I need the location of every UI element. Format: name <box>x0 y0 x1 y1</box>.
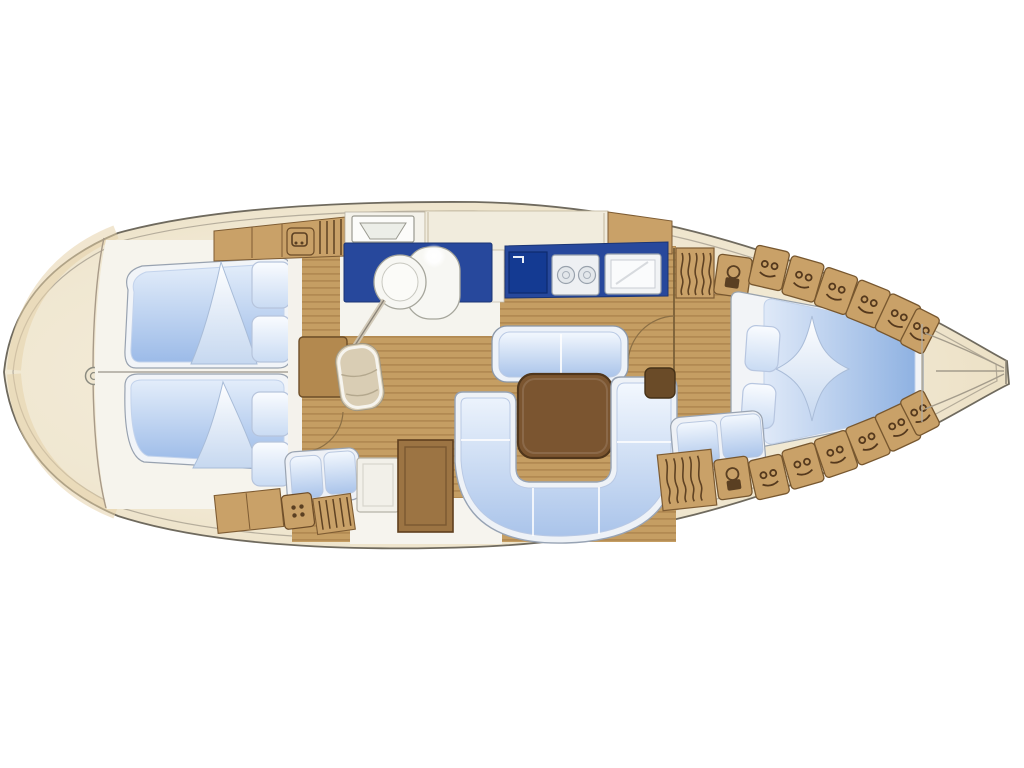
floor-plan-drawing <box>0 0 1024 768</box>
oven-icebox <box>605 254 661 294</box>
locker-latch-box <box>713 456 752 500</box>
chart-locker <box>398 440 453 532</box>
pillow <box>744 325 780 372</box>
faucet-highlight <box>422 244 446 268</box>
stove <box>552 255 599 295</box>
toilet-seat <box>382 263 418 301</box>
burner-icon <box>579 267 596 284</box>
hatch-box <box>657 449 717 510</box>
pillow <box>252 392 290 436</box>
locker-icon-box <box>287 228 314 255</box>
forward-lockers-lower <box>214 489 284 534</box>
pillow <box>252 316 290 362</box>
yacht-floor-plan-canvas <box>0 0 1024 768</box>
washbasin <box>352 216 414 242</box>
hatch-box <box>313 494 356 535</box>
cushion <box>720 413 764 459</box>
pillow <box>252 262 290 308</box>
pillow <box>252 442 290 486</box>
salon-table <box>518 374 612 458</box>
dark-wood-block <box>645 368 675 398</box>
burner-icon <box>558 267 575 284</box>
locker-icon-box <box>281 492 315 529</box>
locker-latch-box <box>713 254 752 298</box>
cushion <box>323 451 357 495</box>
v-berth-upper <box>125 258 290 368</box>
galley-sink <box>509 252 547 293</box>
